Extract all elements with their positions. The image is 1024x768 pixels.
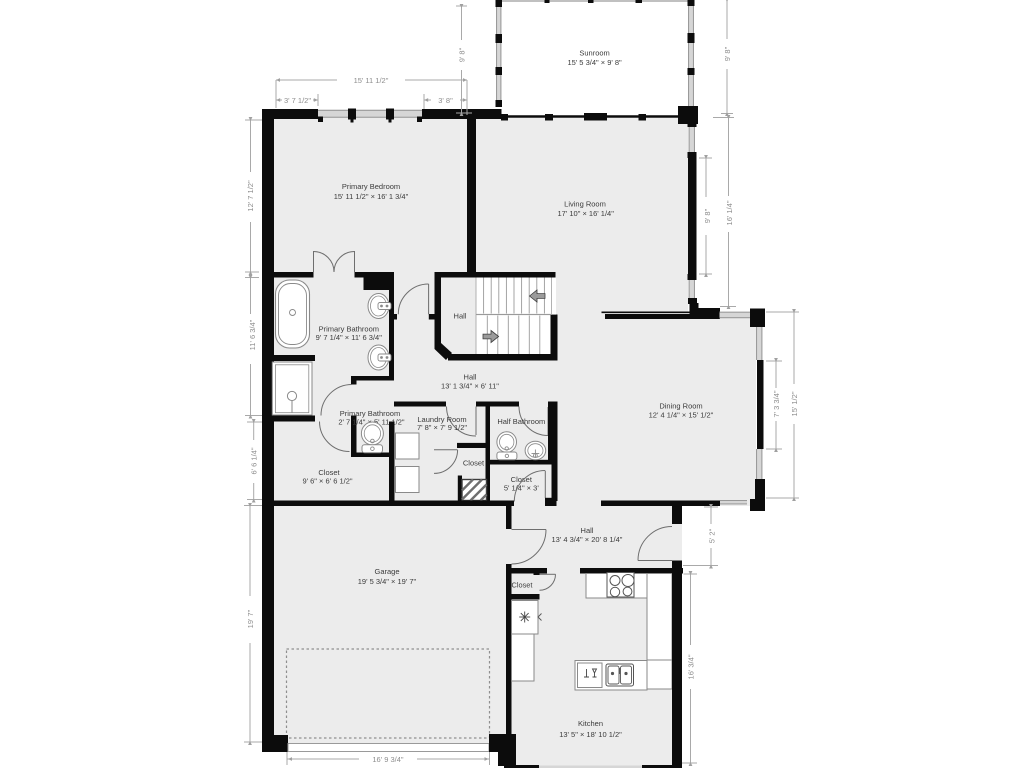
- svg-text:13' 1 3/4" × 6' 11": 13' 1 3/4" × 6' 11": [441, 381, 499, 390]
- svg-text:Hall: Hall: [454, 311, 467, 320]
- svg-text:7' 3 3/4": 7' 3 3/4": [772, 390, 781, 417]
- svg-text:13' 4 3/4" × 20' 8 1/4": 13' 4 3/4" × 20' 8 1/4": [552, 535, 623, 544]
- svg-text:3' 8": 3' 8": [438, 96, 453, 105]
- svg-text:15' 5 3/4" × 9' 8": 15' 5 3/4" × 9' 8": [567, 58, 622, 67]
- svg-text:Half Bathroom: Half Bathroom: [497, 417, 545, 426]
- svg-text:9' 7 1/4" × 11' 6 3/4": 9' 7 1/4" × 11' 6 3/4": [316, 333, 383, 342]
- svg-text:Hall: Hall: [464, 372, 477, 381]
- svg-text:Dining Room: Dining Room: [659, 402, 702, 411]
- svg-text:9' 6" × 6' 6 1/2": 9' 6" × 6' 6 1/2": [302, 476, 352, 485]
- svg-text:5' 2": 5' 2": [708, 528, 717, 543]
- svg-text:Living Room: Living Room: [564, 199, 606, 208]
- svg-text:17' 10" × 16' 1/4": 17' 10" × 16' 1/4": [558, 209, 615, 218]
- svg-text:3' 7 1/2": 3' 7 1/2": [284, 96, 311, 105]
- svg-text:7' 8" × 7' 9 1/2": 7' 8" × 7' 9 1/2": [417, 423, 467, 432]
- svg-text:19' 5 3/4" × 19' 7": 19' 5 3/4" × 19' 7": [358, 577, 417, 586]
- svg-text:15' 11 1/2" × 16' 1 3/4": 15' 11 1/2" × 16' 1 3/4": [334, 192, 409, 201]
- svg-text:Garage: Garage: [374, 567, 399, 576]
- svg-text:16' 1/4": 16' 1/4": [725, 200, 734, 225]
- svg-text:15' 11 1/2": 15' 11 1/2": [354, 76, 389, 85]
- svg-text:9' 8": 9' 8": [458, 47, 467, 62]
- svg-text:9' 8": 9' 8": [723, 46, 732, 61]
- svg-text:13' 5" × 18' 10 1/2": 13' 5" × 18' 10 1/2": [559, 730, 622, 739]
- svg-text:Hall: Hall: [581, 526, 594, 535]
- svg-text:12' 7 1/2": 12' 7 1/2": [246, 180, 255, 212]
- svg-text:Sunroom: Sunroom: [579, 49, 609, 58]
- svg-text:11' 6 3/4": 11' 6 3/4": [248, 319, 257, 350]
- svg-text:15' 1/2": 15' 1/2": [790, 391, 799, 416]
- svg-text:9' 8": 9' 8": [703, 208, 712, 223]
- svg-text:Primary Bathroom: Primary Bathroom: [340, 409, 400, 418]
- svg-text:Kitchen: Kitchen: [578, 719, 603, 728]
- svg-text:Primary Bathroom: Primary Bathroom: [319, 324, 379, 333]
- svg-text:19' 7": 19' 7": [246, 609, 255, 628]
- svg-text:16' 3/4": 16' 3/4": [687, 654, 696, 679]
- svg-text:16' 9 3/4": 16' 9 3/4": [372, 755, 404, 764]
- svg-text:Primary Bedroom: Primary Bedroom: [342, 182, 400, 191]
- svg-text:5' 1/4" × 3': 5' 1/4" × 3': [504, 483, 539, 492]
- svg-text:Closet: Closet: [463, 458, 485, 467]
- svg-text:6' 6 1/4": 6' 6 1/4": [250, 447, 259, 474]
- svg-text:12' 4 1/4" × 15' 1/2": 12' 4 1/4" × 15' 1/2": [649, 411, 714, 420]
- svg-text:Closet: Closet: [512, 581, 533, 590]
